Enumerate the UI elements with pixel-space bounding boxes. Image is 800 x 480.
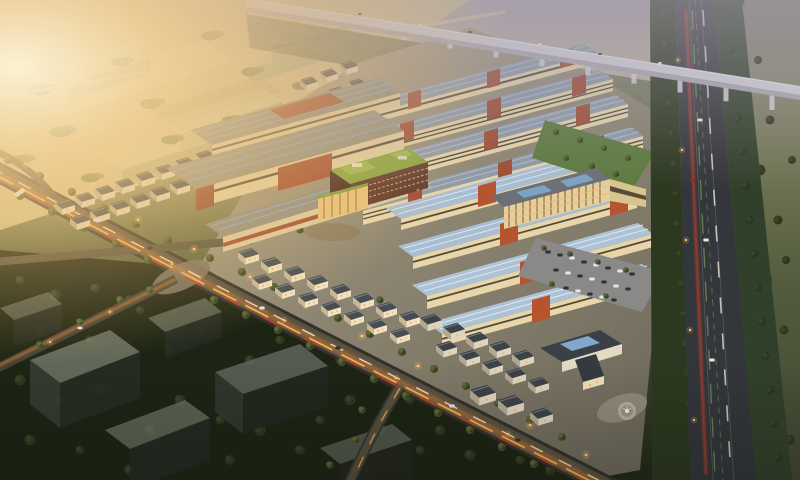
vignette (0, 360, 800, 480)
aerial-rendering (0, 0, 800, 480)
